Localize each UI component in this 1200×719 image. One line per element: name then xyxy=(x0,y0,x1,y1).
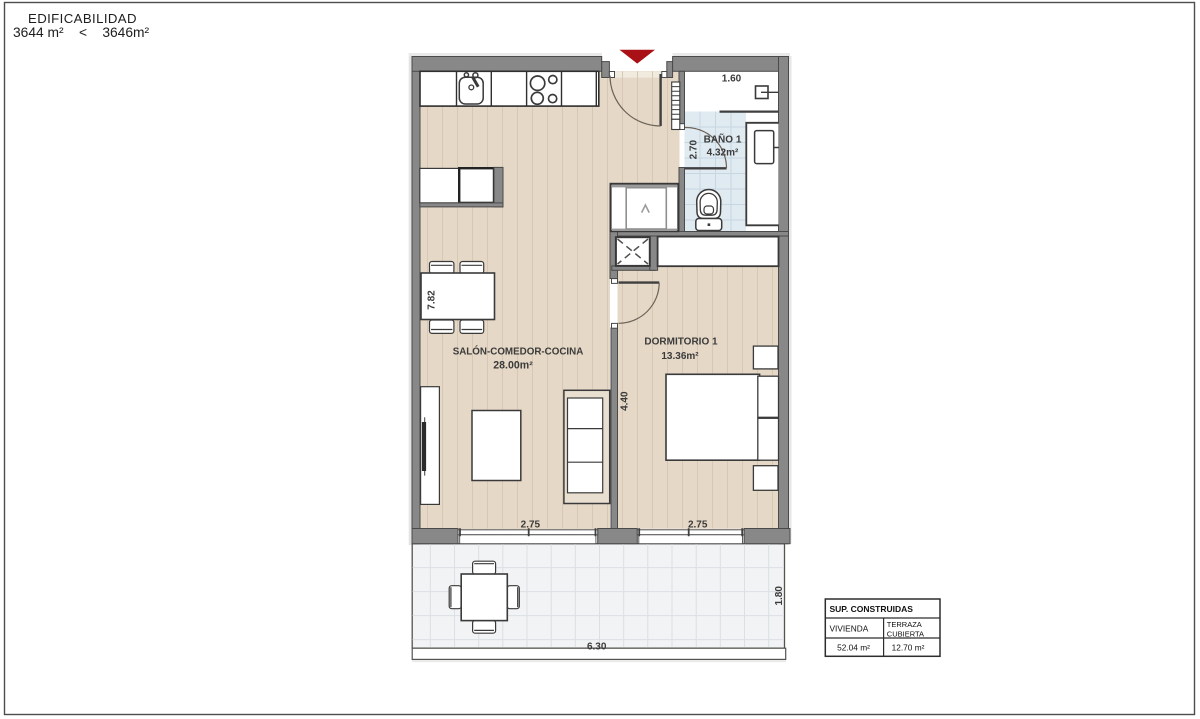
svg-text:12.70 m²: 12.70 m² xyxy=(892,643,925,653)
svg-text:28.00m²: 28.00m² xyxy=(493,360,533,372)
svg-text:SUP. CONSTRUIDAS: SUP. CONSTRUIDAS xyxy=(830,604,914,614)
svg-text:3644 m² < 3646m²: 3644 m² < 3646m² xyxy=(13,25,150,40)
svg-text:13.36m²: 13.36m² xyxy=(661,351,699,362)
svg-text:CUBIERTA: CUBIERTA xyxy=(887,630,924,639)
svg-text:6.30: 6.30 xyxy=(587,641,607,652)
svg-text:1.60: 1.60 xyxy=(722,74,742,85)
svg-text:TERRAZA: TERRAZA xyxy=(887,620,922,629)
svg-text:2.75: 2.75 xyxy=(521,519,541,530)
svg-text:DORMITORIO 1: DORMITORIO 1 xyxy=(644,336,718,347)
svg-text:2.75: 2.75 xyxy=(688,520,708,531)
svg-text:SALÓN-COMEDOR-COCINA: SALÓN-COMEDOR-COCINA xyxy=(453,346,584,358)
svg-text:1.80: 1.80 xyxy=(774,586,785,606)
svg-text:2.70: 2.70 xyxy=(689,140,700,160)
svg-text:7.82: 7.82 xyxy=(426,290,437,310)
svg-text:EDIFICABILIDAD: EDIFICABILIDAD xyxy=(28,11,137,26)
svg-text:4.40: 4.40 xyxy=(620,391,631,411)
svg-text:4.32m²: 4.32m² xyxy=(707,148,739,159)
svg-text:BAÑO 1: BAÑO 1 xyxy=(704,132,742,145)
svg-text:52.04 m²: 52.04 m² xyxy=(837,643,870,653)
svg-text:VIVIENDA: VIVIENDA xyxy=(830,624,869,634)
